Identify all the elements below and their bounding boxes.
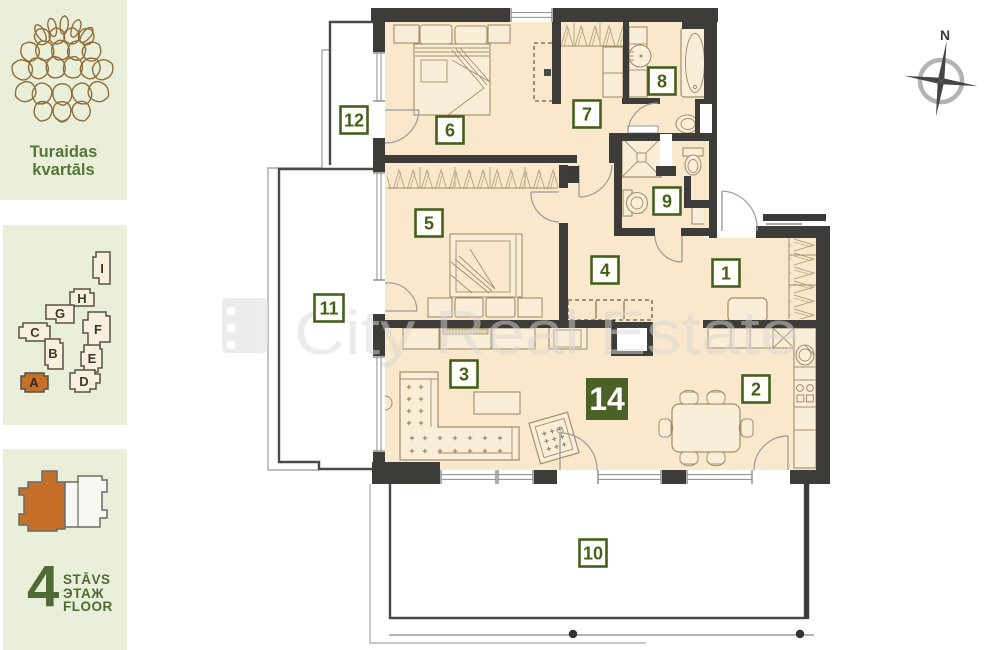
svg-text:F: F	[94, 322, 102, 337]
svg-text:H: H	[77, 291, 86, 306]
svg-text:1: 1	[721, 263, 731, 283]
svg-text:11: 11	[319, 298, 338, 318]
svg-text:12: 12	[344, 110, 364, 130]
svg-text:G: G	[55, 306, 65, 321]
svg-text:9: 9	[662, 191, 672, 211]
svg-text:A: A	[29, 375, 39, 390]
svg-text:E: E	[88, 351, 97, 366]
svg-text:3: 3	[459, 364, 469, 384]
svg-text:N: N	[940, 27, 950, 43]
svg-text:10: 10	[583, 543, 603, 563]
svg-text:I: I	[100, 261, 104, 276]
svg-text:7: 7	[582, 104, 592, 124]
svg-text:4: 4	[600, 260, 610, 280]
svg-text:B: B	[48, 346, 57, 361]
svg-text:City Real Estate: City Real Estate	[294, 299, 799, 368]
svg-text:D: D	[79, 374, 88, 389]
svg-text:2: 2	[751, 379, 761, 399]
svg-text:C: C	[30, 325, 40, 340]
svg-text:6: 6	[445, 120, 455, 140]
svg-text:8: 8	[657, 71, 667, 91]
svg-text:5: 5	[424, 213, 434, 233]
svg-text:14: 14	[589, 381, 625, 417]
